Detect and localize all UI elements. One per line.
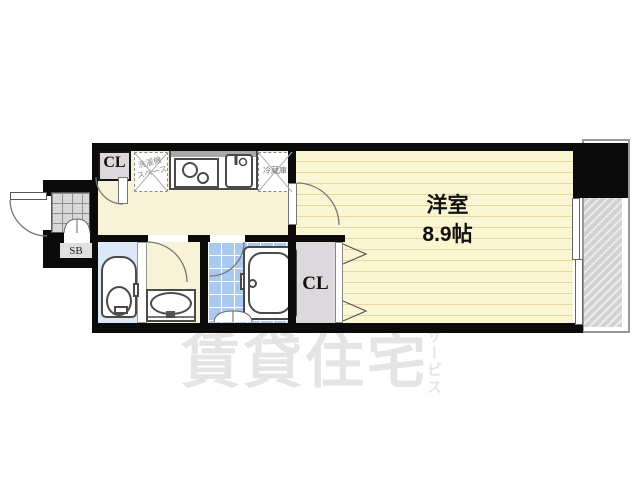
toilet-base (114, 306, 128, 314)
main-room-name: 洋室 (370, 191, 525, 220)
main-room-label: 洋室 8.9帖 (370, 191, 525, 249)
washbasin-faucet (166, 311, 175, 318)
refrigerator-label: 冷蔵庫 (258, 165, 292, 176)
watermark: 賃貸住宅 サービス (181, 322, 481, 402)
genkan-tile (51, 192, 90, 233)
wall-mid-center (188, 235, 210, 242)
wall-hall-bath (200, 242, 208, 323)
main-room-door-leaf (288, 183, 297, 225)
watermark-vertical-text: サービス (423, 328, 444, 400)
wall-top-right-block (573, 143, 628, 198)
closet-bottom-label: CL (296, 273, 335, 295)
toilet-handle (133, 283, 139, 297)
bathtub-drain-knob (248, 279, 257, 288)
kitchen-sink (225, 154, 253, 188)
stove-burner-large (182, 162, 198, 178)
closet-bottom-door-strip (335, 242, 343, 323)
closet-top-label: CL (98, 154, 131, 172)
floorplan-canvas: 賃貸住宅 サービス SB (0, 0, 640, 480)
stove-burner-small (197, 172, 209, 184)
sliding-window-pane-2 (575, 259, 583, 325)
wall-bath-closet (288, 242, 296, 323)
shoe-box: SB (60, 243, 92, 258)
balcony-hatch (584, 198, 622, 327)
watermark-text: 賃貸住宅 (181, 329, 429, 395)
closet-top-door-leaf (118, 177, 128, 204)
entrance-door-arc (10, 200, 47, 236)
entrance-door-leaf (10, 192, 47, 200)
genkan-threshold (64, 233, 90, 243)
wall-kitchen-room-upper (288, 143, 296, 183)
wall-mid-right (245, 235, 345, 242)
shoe-box-label: SB (69, 245, 82, 257)
wall-bottom (92, 323, 583, 333)
sliding-window-pane-1 (572, 198, 580, 260)
wall-top (92, 143, 628, 151)
entrance-doorway-gap (43, 196, 51, 230)
main-room-size: 8.9帖 (370, 220, 525, 249)
wall-mid-left (92, 235, 148, 242)
